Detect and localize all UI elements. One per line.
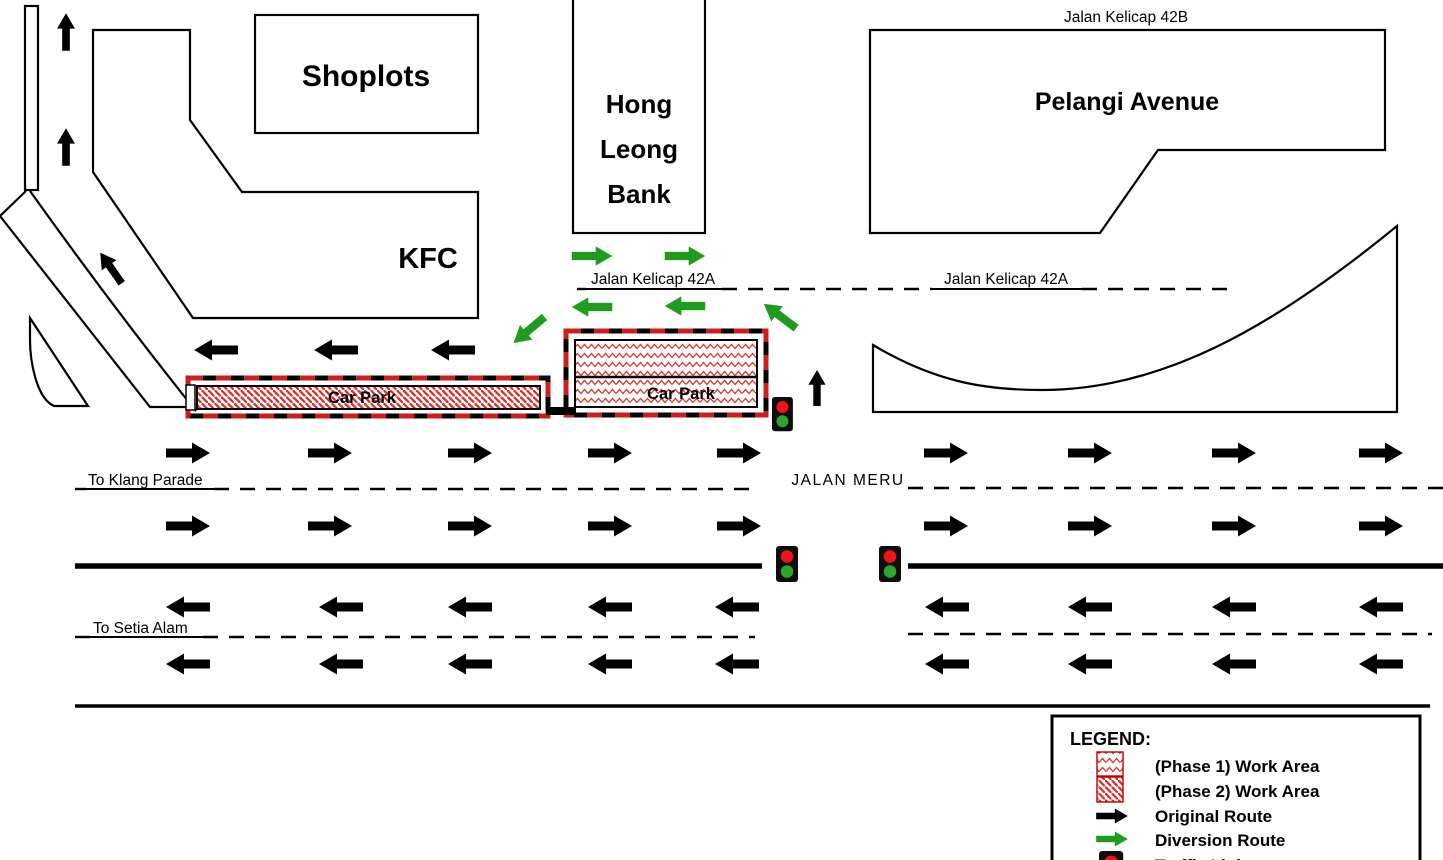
legend-title: LEGEND: [1070, 729, 1151, 749]
traffic-light-median-west [776, 546, 798, 582]
verge-curved-area [873, 226, 1397, 412]
original-route-arrow [319, 597, 363, 618]
legend-swatch-phase2 [1097, 777, 1123, 802]
original-route-arrow [717, 516, 761, 537]
original-route-arrow [1212, 654, 1256, 675]
slip-road-edge-outer [0, 191, 26, 216]
carpark-connector [546, 407, 576, 415]
traffic-island [30, 318, 88, 406]
original-route-arrow [1359, 597, 1403, 618]
original-route-arrow [93, 248, 129, 289]
legend-traffic-light-icon [1099, 851, 1123, 860]
original-route-arrow [588, 443, 632, 464]
hlb-label-line1: Hong [606, 89, 672, 119]
legend-item-traffic-light-label: Traffic Light [1155, 856, 1253, 860]
original-route-arrow [1068, 597, 1112, 618]
original-route-arrow [717, 443, 761, 464]
legend-item-original-label: Original Route [1155, 807, 1272, 826]
traffic-diversion-map: Car Park Car Park [0, 0, 1443, 860]
original-route-arrow [166, 516, 210, 537]
diversion-route-arrow [572, 297, 612, 316]
legend: LEGEND: (Phase 1) Work Area (Phase 2) Wo… [1052, 716, 1420, 860]
carpark-east-label: Car Park [647, 385, 716, 403]
diversion-route-arrows [507, 246, 802, 350]
original-route-arrow [448, 516, 492, 537]
original-route-arrow [588, 597, 632, 618]
traffic-light-junction [772, 397, 793, 431]
jalan-kelicap-42a-right-label: Jalan Kelicap 42A [944, 271, 1069, 288]
original-route-arrow [448, 443, 492, 464]
jalan-kelicap-42a-left-label: Jalan Kelicap 42A [591, 271, 716, 288]
legend-item-phase1-label: (Phase 1) Work Area [1155, 757, 1320, 776]
original-route-arrow [308, 443, 352, 464]
diversion-route-arrow [665, 246, 705, 265]
original-route-arrow [925, 597, 969, 618]
original-route-arrow [194, 340, 238, 361]
work-area-phase2-carpark: Car Park [186, 378, 548, 416]
to-klang-parade-label: To Klang Parade [88, 472, 203, 489]
pelangi-avenue-building [870, 30, 1385, 233]
original-route-arrow [431, 340, 475, 361]
original-route-arrow [1359, 654, 1403, 675]
original-route-arrow [308, 516, 352, 537]
original-route-arrow [588, 654, 632, 675]
pelangi-label: Pelangi Avenue [1035, 88, 1219, 116]
original-route-arrow [57, 13, 75, 50]
diversion-route-arrow [665, 296, 705, 315]
shoplots-label: Shoplots [302, 60, 430, 93]
original-route-arrow [808, 370, 825, 406]
median-bar-top-left [25, 6, 38, 190]
original-route-arrow [1068, 654, 1112, 675]
original-route-arrow [1212, 597, 1256, 618]
original-route-arrow [588, 516, 632, 537]
original-route-arrow [1359, 516, 1403, 537]
carpark-west-entrance-gap [186, 385, 195, 410]
original-route-arrow [715, 597, 759, 618]
work-area-phase1-carpark: Car Park [546, 331, 766, 415]
original-route-arrow [1359, 443, 1403, 464]
diversion-route-arrow [507, 310, 550, 351]
to-setia-alam-label: To Setia Alam [93, 620, 188, 637]
original-route-arrow [319, 654, 363, 675]
legend-item-diversion-label: Diversion Route [1155, 831, 1285, 850]
legend-item-phase2-label: (Phase 2) Work Area [1155, 782, 1320, 801]
jalan-kelicap-42b-label: Jalan Kelicap 42B [1064, 9, 1188, 26]
original-route-arrow [166, 597, 210, 618]
original-route-arrow [57, 128, 75, 165]
traffic-light-median-east [879, 546, 901, 582]
original-route-arrow [925, 654, 969, 675]
diversion-route-arrow [572, 246, 612, 265]
original-route-arrow [314, 340, 358, 361]
original-route-arrow [448, 597, 492, 618]
original-route-arrow [924, 516, 968, 537]
map-svg: Car Park Car Park [0, 0, 1443, 860]
original-route-arrow [448, 654, 492, 675]
legend-swatch-phase1 [1097, 752, 1123, 776]
original-route-arrow [924, 443, 968, 464]
original-route-arrow [1212, 516, 1256, 537]
original-route-arrow [1068, 516, 1112, 537]
original-route-arrow [715, 654, 759, 675]
original-route-arrow [1068, 443, 1112, 464]
original-route-arrow [1212, 443, 1256, 464]
original-route-arrow [166, 443, 210, 464]
carpark-west-label: Car Park [328, 389, 397, 407]
hlb-label-line3: Bank [607, 179, 671, 209]
kfc-label: KFC [398, 243, 458, 275]
hlb-label-line2: Leong [600, 134, 678, 164]
jalan-meru-label: JALAN MERU [791, 472, 904, 489]
original-route-arrow [166, 654, 210, 675]
